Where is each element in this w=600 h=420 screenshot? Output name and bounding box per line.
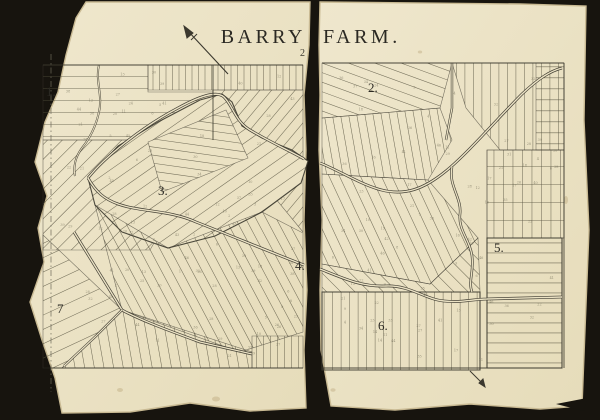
lot-number: 4 [344,321,346,325]
lot-number: 26 [275,323,279,327]
lot-number: 12 [98,227,102,231]
lot-number: 11 [155,338,159,342]
lot-number: 23 [370,318,374,322]
lot-number: 22 [375,301,379,305]
lot-number: 44 [185,213,189,217]
lot-number: 6 [151,111,153,115]
lot-number: 44 [135,323,139,327]
lot-number: 24 [129,101,133,105]
section-label-3: 3. [158,183,168,198]
foxing-spot [564,196,568,204]
lot-number: 20 [113,112,117,116]
lot-number: 11 [445,145,449,149]
lot-number: 5 [265,316,267,320]
lot-number: 13 [456,308,460,312]
lot-number: 14 [373,330,377,334]
lot-number: 41 [367,268,371,272]
lot-number: 20 [123,230,127,234]
lot-number: 12 [215,203,219,207]
lot-number: 31 [507,153,511,157]
lot-number: 28 [83,138,87,142]
lot-number: 30 [359,229,363,233]
lot-number: 23 [148,149,152,153]
lot-number: 38 [90,112,94,116]
lot-number: 27 [101,320,105,324]
scanned-map-page: 2724123284426128339183321212810134427643… [0,0,600,420]
lot-number: 18 [359,108,363,112]
lot-number: 37 [553,149,557,153]
lot-number: 10 [485,201,489,205]
lot-number: 12 [143,205,147,209]
lot-number: 13 [142,270,146,274]
lot-number: 39 [60,223,64,227]
lot-number: 12 [476,186,480,190]
lot-number: 28 [212,284,216,288]
lot-number: 6 [332,255,334,259]
lot-number: 10 [257,332,261,336]
lot-number: 37 [291,247,295,251]
lot-number: 36 [505,304,509,308]
lot-number: 33 [430,217,434,221]
section-label-5: 5. [494,240,504,255]
lot-number: 10 [248,180,252,184]
barry-farm-plat-map: 2724123284426128339183321212810134427643… [0,0,600,420]
lot-number: 2 [228,214,230,218]
lot-number: 25 [140,279,144,283]
lot-number: 8 [290,299,292,303]
lot-number: 11 [122,110,126,114]
lot-number: 3 [254,202,256,206]
lot-number: 28 [112,212,116,216]
lot-number: 9 [344,307,346,311]
lot-number: 6 [287,290,289,294]
lot-number: 34 [197,173,201,177]
lot-number: 28 [289,261,293,265]
lot-number: 34 [359,326,363,330]
lot-number: 23 [294,314,298,318]
lot-number: 28 [209,317,213,321]
lot-number: 46 [185,256,189,260]
lot-number: 16 [469,242,473,246]
lot-number: 17 [454,349,458,353]
lot-number: 18 [523,164,527,168]
lot-number: 11 [479,358,483,362]
lot-number: 17 [512,184,516,188]
lot-number: 39 [251,269,255,273]
lot-number: 41 [110,268,114,272]
lot-number: 30 [193,155,197,159]
lot-number: 22 [359,279,363,283]
lot-number: 35 [417,355,421,359]
lot-number: 41 [550,276,554,280]
lot-number: 13 [131,221,135,225]
lot-number: 23 [359,189,363,193]
lot-number: 28 [266,114,270,118]
lot-number: 36 [342,162,346,166]
lot-number: 12 [89,98,93,102]
lot-number: 28 [468,185,472,189]
lot-number: 21 [499,166,503,170]
lot-number: 21 [257,142,261,146]
lot-number: 7 [419,213,421,217]
lot-number: 37 [353,84,357,88]
lot-number: 29 [446,152,450,156]
lot-number: 39 [160,82,164,86]
lot-number: 38 [290,272,294,276]
lot-number: 13 [120,73,124,77]
lot-number: 4 [453,92,455,96]
lot-number: 22 [537,302,541,306]
lot-number: 3 [413,85,415,89]
lot-number: 27 [504,139,508,143]
lot-number: 22 [528,219,532,223]
lot-number: 2 [239,349,241,353]
lot-number: 42 [384,237,388,241]
lot-number: 40 [109,295,113,299]
lot-number: 13 [236,266,240,270]
lot-number: 41 [438,318,442,322]
lot-number: 5 [109,134,111,138]
lot-number: 46 [437,144,441,148]
lot-number: 36 [339,76,343,80]
lot-number: 29 [218,337,222,341]
lot-number: 21 [80,166,84,170]
lot-number: 44 [391,339,395,343]
lot-number: 17 [407,183,411,187]
section-label-2: 2. [368,80,378,95]
foxing-spot [117,388,123,392]
lot-number: 8 [281,305,283,309]
lot-number: 17 [281,197,285,201]
foxing-spot [418,51,422,54]
lot-number: 6 [476,274,478,278]
lot-number: 35 [503,198,507,202]
lot-number: 34 [341,229,345,233]
lot-number: 32 [530,316,534,320]
lot-number: 33 [388,319,392,323]
lot-number: 39 [242,254,246,258]
lot-number: 40 [533,181,537,185]
lot-number: 27 [276,343,280,347]
lot-number: 30 [489,322,493,326]
lot-number: 25 [421,287,425,291]
lot-number: 46 [232,223,236,227]
map-title-right: FARM. [323,26,401,48]
section-label-6: 6. [378,318,388,333]
lot-number: 41 [402,150,406,154]
lot-number: 40 [238,81,242,85]
lot-number: 8 [396,245,398,249]
lot-number: 32 [531,77,535,81]
lot-number: 9 [384,282,386,286]
lot-number: 36 [193,325,197,329]
lot-number: 32 [129,231,133,235]
plate-number: 2 [300,48,305,59]
lot-number: 39 [538,138,542,142]
lot-number: 6 [136,158,138,162]
lot-number: 12 [277,74,281,78]
lot-number: 46 [380,252,384,256]
lot-number: 17 [487,177,491,181]
lot-number: 43 [290,97,294,101]
lot-number: 30 [152,71,156,75]
lot-number: 20 [157,284,161,288]
lot-number: 28 [86,290,90,294]
lot-number: 11 [383,333,387,337]
lot-number: 41 [162,101,166,105]
section-label-1: 1. [46,84,56,99]
lot-number: 32 [88,297,92,301]
section-label-7: 7 [57,301,64,316]
lot-number: 45 [126,134,130,138]
lot-number: 14 [378,338,382,342]
lot-number: 28 [554,165,558,169]
lot-number: 45 [110,179,114,183]
lot-number: 26 [517,181,521,185]
lot-number: 27 [416,324,420,328]
lot-number: 18 [200,134,204,138]
lot-number: 10 [366,218,370,222]
lot-number: 13 [351,282,355,286]
lot-number: 29 [68,225,72,229]
lot-number: 6 [216,243,218,247]
foxing-spot [212,397,220,402]
lot-number: 21 [410,204,414,208]
lot-number: 16 [456,233,460,237]
lot-number: 38 [66,89,70,93]
lot-number: 21 [228,354,232,358]
lot-number: 10 [223,209,227,213]
lot-number: 1 [179,269,181,273]
lot-number: 37 [237,196,241,200]
lot-number: 21 [79,123,83,127]
lot-number: 6 [550,167,552,171]
lot-number: 5 [159,103,161,107]
lot-number: 22 [67,165,71,169]
map-title-left: BARRY [221,26,306,48]
foxing-spot [330,388,335,391]
lot-number: 2 [115,284,117,288]
lot-number: 20 [125,268,129,272]
lot-number: 27 [418,329,422,333]
lot-number: 16 [371,156,375,160]
section-label-4: 4. [295,258,305,273]
lot-number: 9 [455,261,457,265]
lot-number: 46 [489,300,493,304]
lot-number: 15 [381,226,385,230]
lot-number: 21 [341,296,345,300]
lot-number: 4 [537,157,539,161]
lot-number: 46 [423,293,427,297]
lot-number: 27 [116,93,120,97]
lot-number: 42 [258,279,262,283]
lot-number: 32 [494,102,498,106]
lot-number: 4 [427,115,429,119]
lot-number: 44 [77,108,81,112]
lot-number: 26 [197,270,201,274]
lot-number: 33 [248,193,252,197]
lot-number: 43 [175,233,179,237]
lot-number: 18 [258,265,262,269]
lot-number: 46 [479,256,483,260]
lot-number: 37 [248,346,252,350]
lot-number: 28 [527,142,531,146]
lot-number: 2 [193,233,195,237]
lot-number: 36 [408,126,412,130]
lot-number: 19 [251,351,255,355]
lot-number: 4 [153,238,155,242]
